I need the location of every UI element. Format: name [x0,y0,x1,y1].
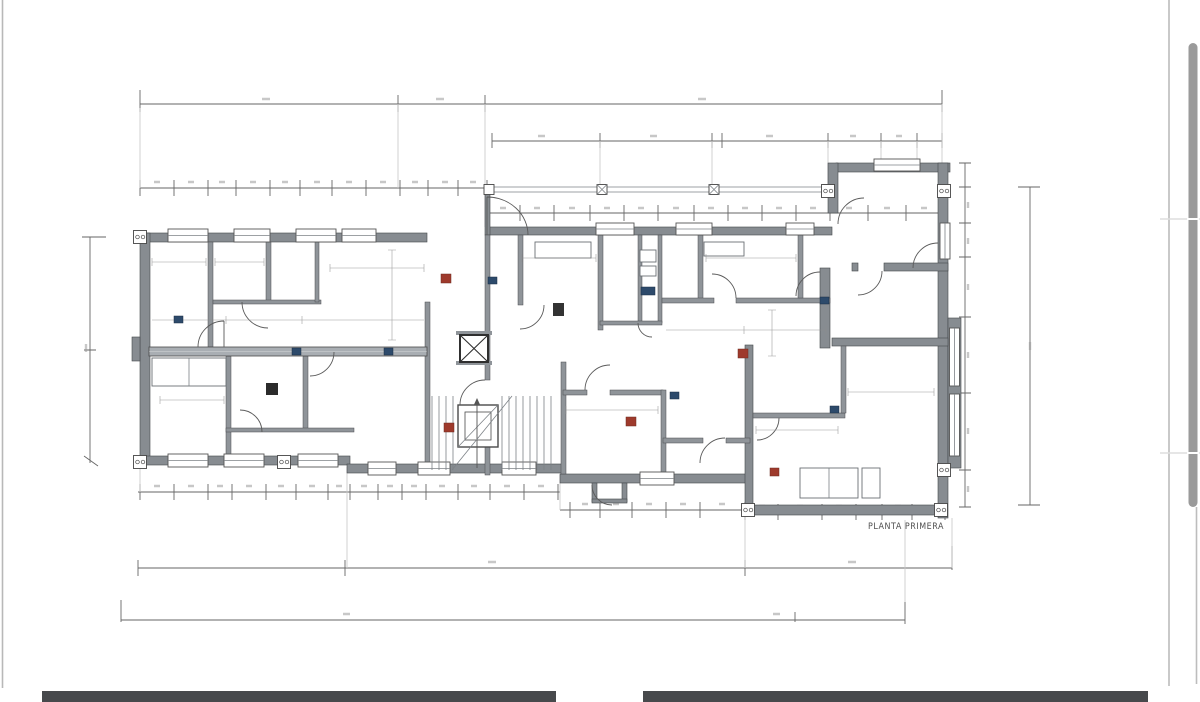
fixture-black-box-2 [553,303,564,316]
floor-plan-page: PLANTA PRIMERA [0,0,1200,702]
balcony-railing [484,185,833,195]
utility-markers [174,274,839,476]
fixture-black-box [266,383,278,395]
bottom-bar-right [643,691,1148,702]
bottom-bar-left [42,691,556,702]
plan-title: PLANTA PRIMERA [868,522,944,532]
scrollbar-thumb[interactable] [1189,43,1198,507]
